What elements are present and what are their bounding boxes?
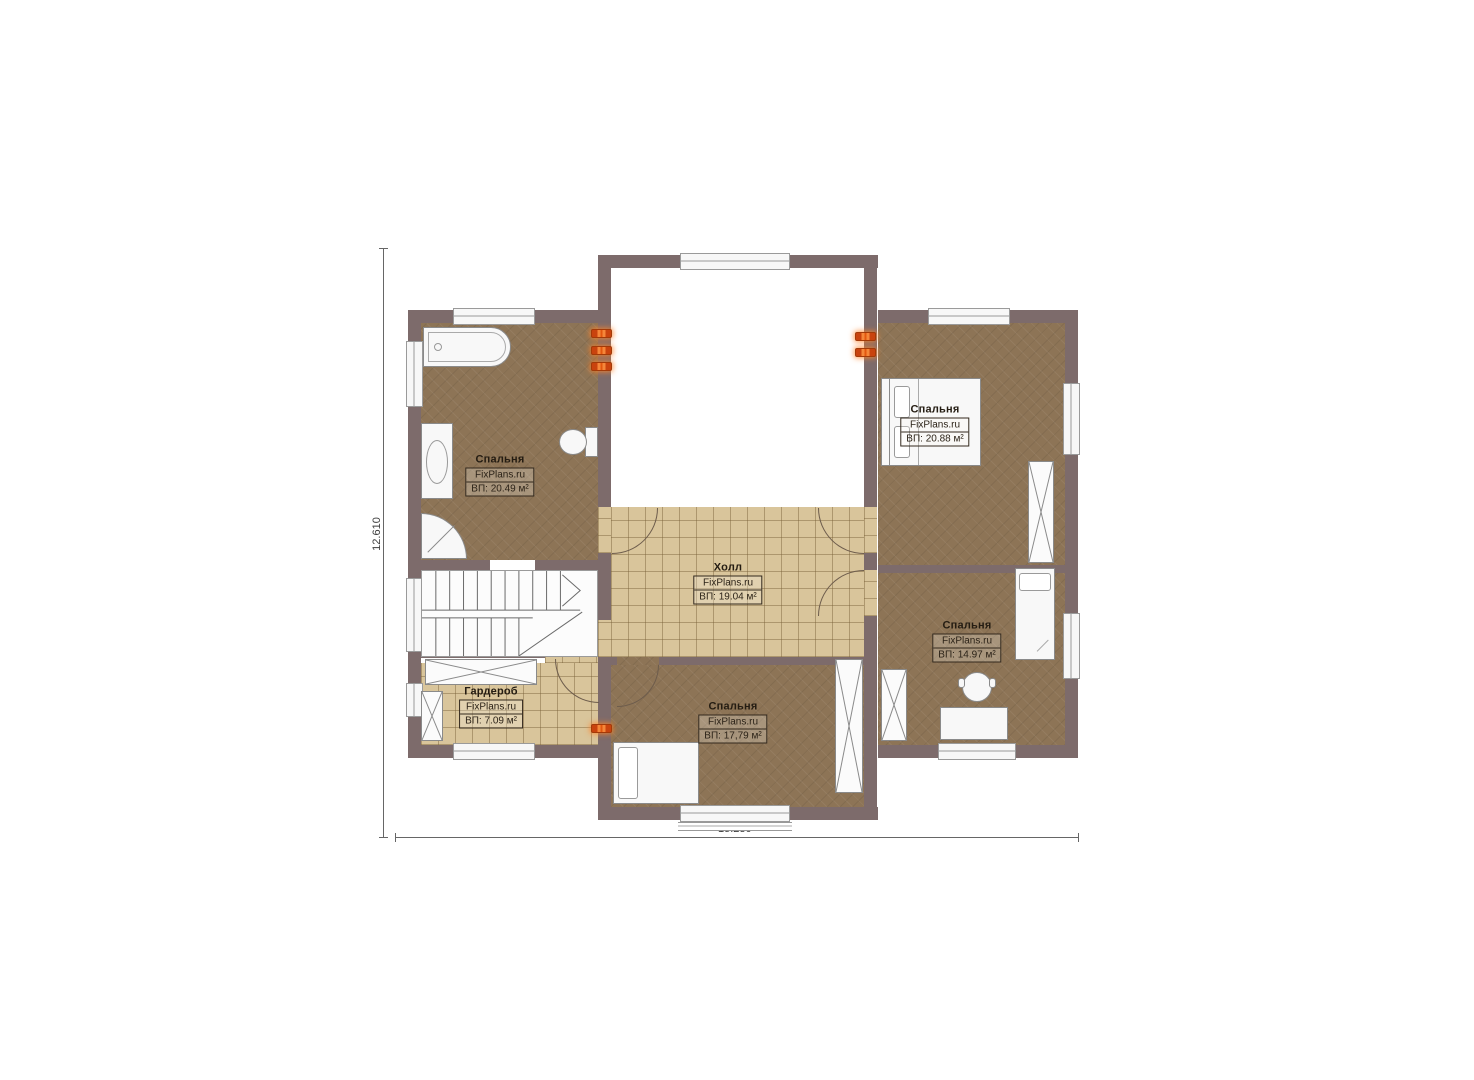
room-area: ВП: 17,79 м² [699,730,766,743]
dimension-tick [379,837,388,838]
wardrobe-cabinet [421,691,443,741]
wardrobe-cabinet [425,659,537,685]
wall [598,553,611,620]
room-label-bedroom-top-right: Спальня FixPlans.ru ВП: 20.88 м² [900,404,969,447]
room-info-box: FixPlans.ru ВП: 20.88 м² [900,418,969,447]
brand-text: FixPlans.ru [694,577,761,591]
bathtub-drain [434,343,442,351]
door-gap-floor [598,507,611,553]
floor-void-over-living-room [611,268,865,507]
toilet-bowl [559,429,587,455]
washbasin-counter [421,423,453,499]
wall [535,560,598,570]
room-label-hall: Холл FixPlans.ru ВП: 19.04 м² [693,562,762,605]
room-name: Спальня [900,404,969,416]
room-info-box: FixPlans.ru ВП: 17,79 м² [698,715,767,744]
wardrobe-cabinet [835,659,863,793]
window-right-wall-bottom [1063,613,1080,679]
door-gap-floor [864,570,877,616]
passage-floor [598,620,611,657]
chair-seat [962,672,992,702]
floor-plan-canvas: 12.610 15.230 [0,0,1474,1080]
room-area: ВП: 7.09 м² [460,715,522,728]
brand-text: FixPlans.ru [460,701,522,715]
room-info-box: FixPlans.ru ВП: 14.97 м² [932,634,1001,663]
room-area: ВП: 14.97 м² [933,649,1000,662]
room-name: Спальня [932,620,1001,632]
room-name: Холл [693,562,762,574]
wall [408,560,490,570]
room-label-bedroom-bottom: Спальня FixPlans.ru ВП: 17,79 м² [698,701,767,744]
chair-armrest [958,678,965,688]
window-left-wing-bottom [453,743,535,760]
room-area: ВП: 20.49 м² [466,483,533,496]
brand-text: FixPlans.ru [466,469,533,483]
room-name: Спальня [698,701,767,713]
vent-marker-icon [591,329,612,338]
room-info-box: FixPlans.ru ВП: 19.04 м² [693,576,762,605]
window-right-wing-top [928,308,1010,325]
window-left-wall-bath [406,341,423,407]
door-gap-floor [617,657,659,665]
bathtub [423,327,511,367]
dimension-line-vertical [383,248,384,838]
floor-plan: Спальня FixPlans.ru ВП: 20.49 м² Спальня… [395,245,1085,845]
wall [1065,310,1078,758]
brand-text: FixPlans.ru [901,419,968,433]
wall [598,657,611,820]
chair [958,670,996,704]
vent-marker-icon [591,362,612,371]
bed-headboard [882,379,890,465]
wall [611,657,617,665]
brand-text: FixPlans.ru [699,716,766,730]
vent-marker-icon [591,346,612,355]
room-info-box: FixPlans.ru ВП: 20.49 м² [465,468,534,497]
wall [864,553,877,570]
window-bottom-balcony [680,805,790,822]
balcony-railing [678,822,792,831]
dimension-tick [379,248,388,249]
wardrobe-cabinet [1028,461,1054,563]
staircase [421,570,598,657]
single-bed-bottom [613,742,699,804]
window-right-wall-top [1063,383,1080,455]
dimension-label-height: 12.610 [371,517,383,551]
vent-marker-icon [591,724,612,733]
vent-marker-icon [855,348,876,357]
room-name: Гардероб [459,686,523,698]
room-area: ВП: 19.04 м² [694,591,761,604]
room-label-bedroom-left: Спальня FixPlans.ru ВП: 20.49 м² [465,454,534,497]
pillow [1019,573,1051,591]
pillow [618,747,638,799]
window-left-wing-top [453,308,535,325]
wall [598,255,611,507]
brand-text: FixPlans.ru [933,635,1000,649]
window-top-center [680,253,790,270]
wardrobe-cabinet [881,669,907,741]
room-label-bedroom-right: Спальня FixPlans.ru ВП: 14.97 м² [932,620,1001,663]
chair-armrest [989,678,996,688]
door-gap-floor [864,507,877,553]
vent-marker-icon [855,332,876,341]
window-right-wing-bottom [938,743,1016,760]
wall [864,255,877,507]
desk [940,707,1008,740]
wall [864,616,877,820]
single-bed-right [1015,568,1055,660]
washbasin-bowl [426,440,448,484]
room-info-box: FixPlans.ru ВП: 7.09 м² [459,700,523,729]
room-label-wardrobe: Гардероб FixPlans.ru ВП: 7.09 м² [459,686,523,729]
corner-shower [421,513,467,559]
room-name: Спальня [465,454,534,466]
room-area: ВП: 20.88 м² [901,433,968,446]
